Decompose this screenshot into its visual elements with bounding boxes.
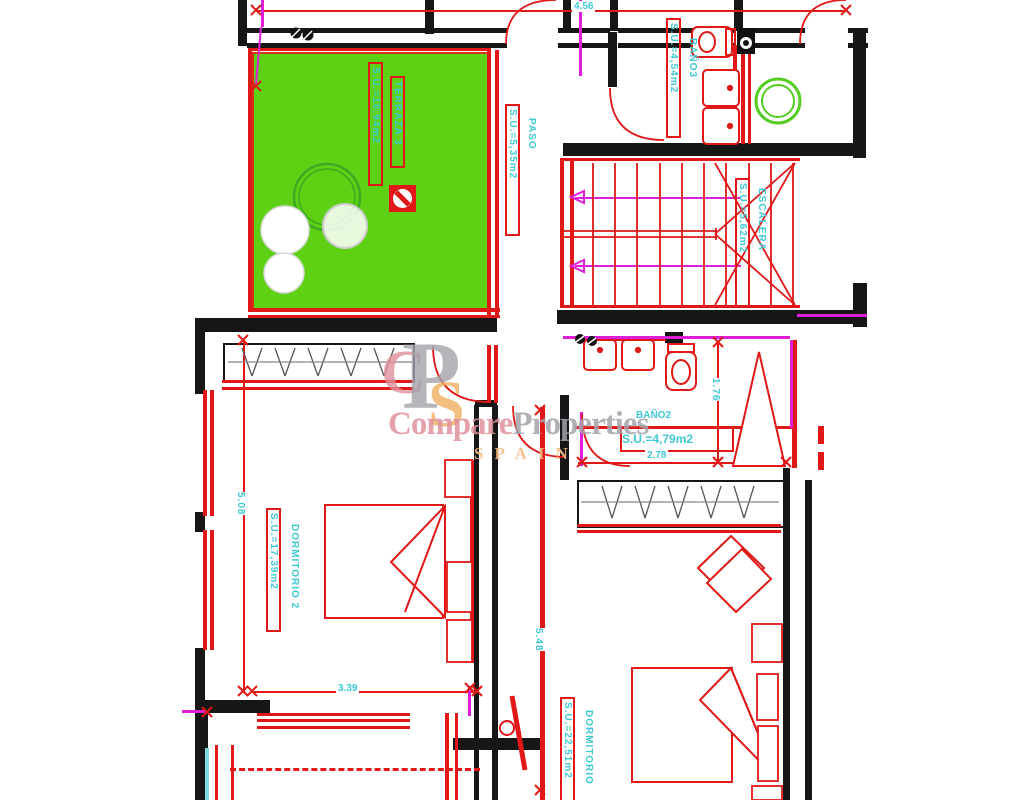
room-area-dormitorio: S.U.=22,51m2 <box>560 697 575 800</box>
room-area-escalera: S.U.=5,62m2 <box>735 178 750 308</box>
dimension-bano2-v: 1.76 <box>708 378 723 401</box>
vent-icons <box>291 28 756 347</box>
no-entry-icon <box>389 185 416 212</box>
room-label-dormitorio2: DORMITORIO 2 <box>289 524 300 658</box>
room-area-terraza: S.U.=10,94m2 <box>368 62 383 186</box>
dimension-top: 4.56 <box>572 1 595 12</box>
room-label-terraza: TERRAZA 3 <box>390 76 405 168</box>
dimension-corridor: 5.48 <box>531 628 546 651</box>
dimension-bano2-h: 2.78 <box>645 450 668 461</box>
room-area-dormitorio2: S.U.=17,39m2 <box>266 508 281 632</box>
watermark-brand: CompareProperties <box>388 406 648 443</box>
dimension-left: 5.08 <box>233 492 248 515</box>
dimension-bottom: 3.39 <box>336 683 359 694</box>
room-area-bano3: S.U.=4,54m2 <box>666 18 681 138</box>
room-area-paso: S.U.=5,35m2 <box>505 104 520 236</box>
room-label-dormitorio: DORMITORIO <box>583 710 594 800</box>
room-label-paso: PASO <box>526 118 537 178</box>
floor-plan: S.U.=10,94m2 TERRAZA 3 S.U.=5,35m2 PASO … <box>0 0 1024 800</box>
watermark-properties: Properties <box>512 406 648 442</box>
watermark-spain: SPAIN <box>474 444 579 464</box>
room-label-bano3: BAÑO3 <box>687 38 698 102</box>
watermark-compare: Compare <box>388 406 512 442</box>
room-label-escalera: ESCALERA <box>756 188 767 288</box>
